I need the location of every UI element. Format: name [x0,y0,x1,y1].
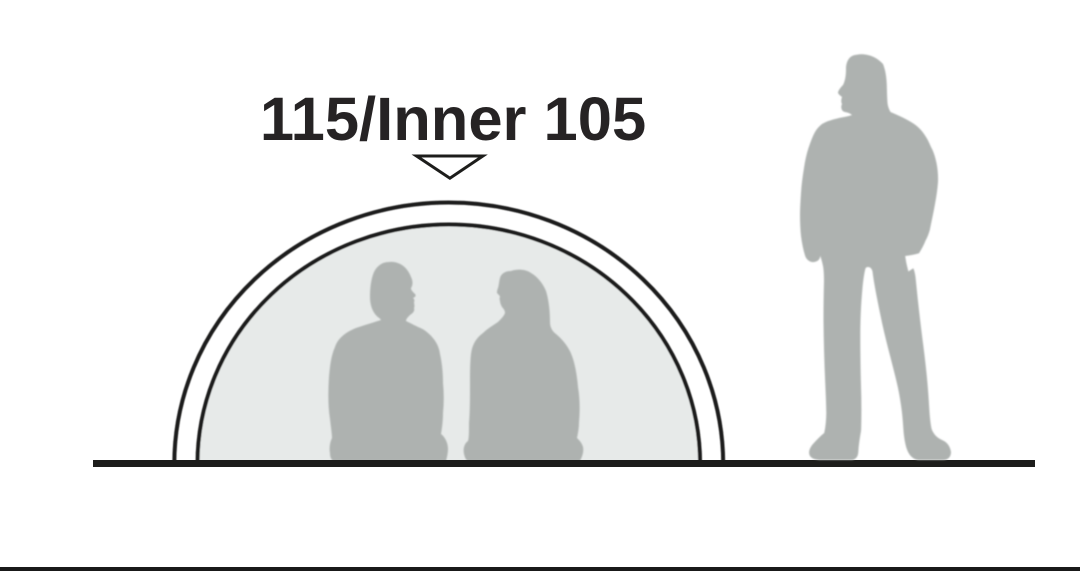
svg-text:115/Inner 105: 115/Inner 105 [260,85,646,154]
